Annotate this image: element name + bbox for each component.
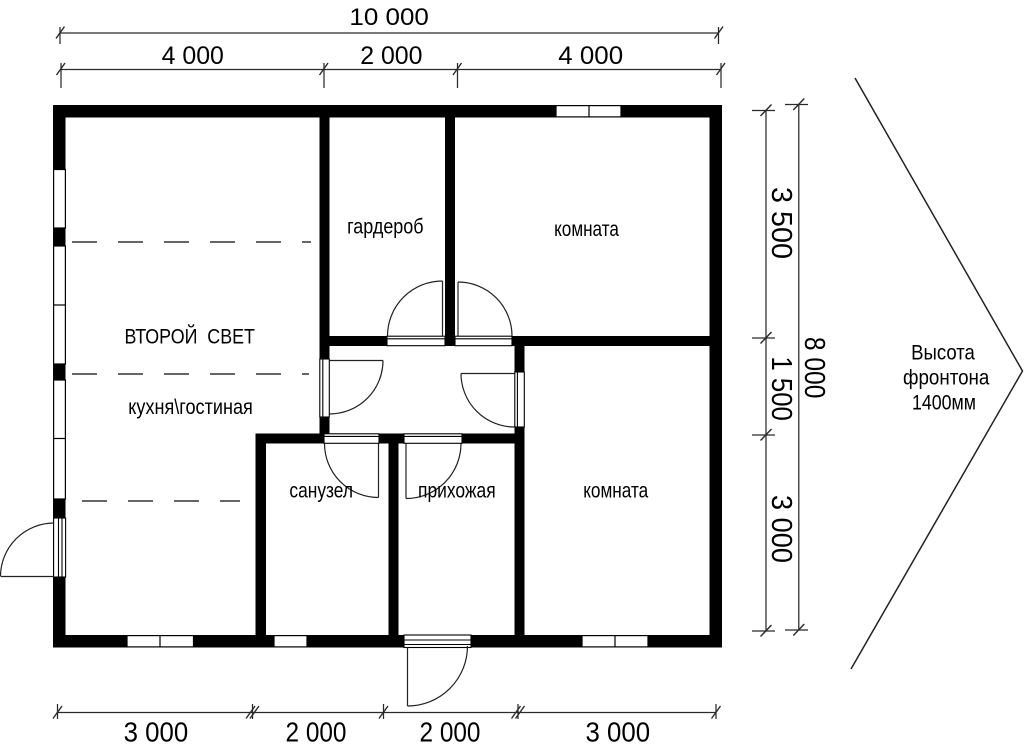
svg-text:10 000: 10 000	[349, 4, 429, 31]
svg-text:санузел: санузел	[289, 479, 353, 503]
svg-text:8 000: 8 000	[798, 337, 830, 399]
svg-text:4 000: 4 000	[558, 42, 623, 70]
svg-text:2 000: 2 000	[420, 717, 481, 747]
svg-text:комната: комната	[554, 217, 619, 241]
svg-text:кухня\гостиная: кухня\гостиная	[128, 395, 253, 419]
svg-text:3 000: 3 000	[765, 495, 797, 563]
svg-text:фронтона: фронтона	[903, 366, 989, 390]
svg-text:3 000: 3 000	[586, 717, 651, 747]
svg-text:гардероб: гардероб	[347, 215, 424, 239]
svg-text:Высота: Высота	[911, 340, 975, 364]
svg-text:ВТОРОЙ СВЕТ: ВТОРОЙ СВЕТ	[125, 324, 255, 349]
svg-text:3 000: 3 000	[124, 717, 189, 747]
svg-text:комната: комната	[583, 478, 648, 502]
svg-text:1 500: 1 500	[765, 356, 797, 421]
svg-text:прихожая: прихожая	[418, 479, 496, 503]
svg-text:1400мм: 1400мм	[912, 391, 976, 415]
svg-text:2 000: 2 000	[360, 42, 422, 70]
svg-text:2 000: 2 000	[286, 717, 347, 747]
svg-text:4 000: 4 000	[162, 42, 224, 70]
svg-text:3 500: 3 500	[765, 187, 797, 259]
